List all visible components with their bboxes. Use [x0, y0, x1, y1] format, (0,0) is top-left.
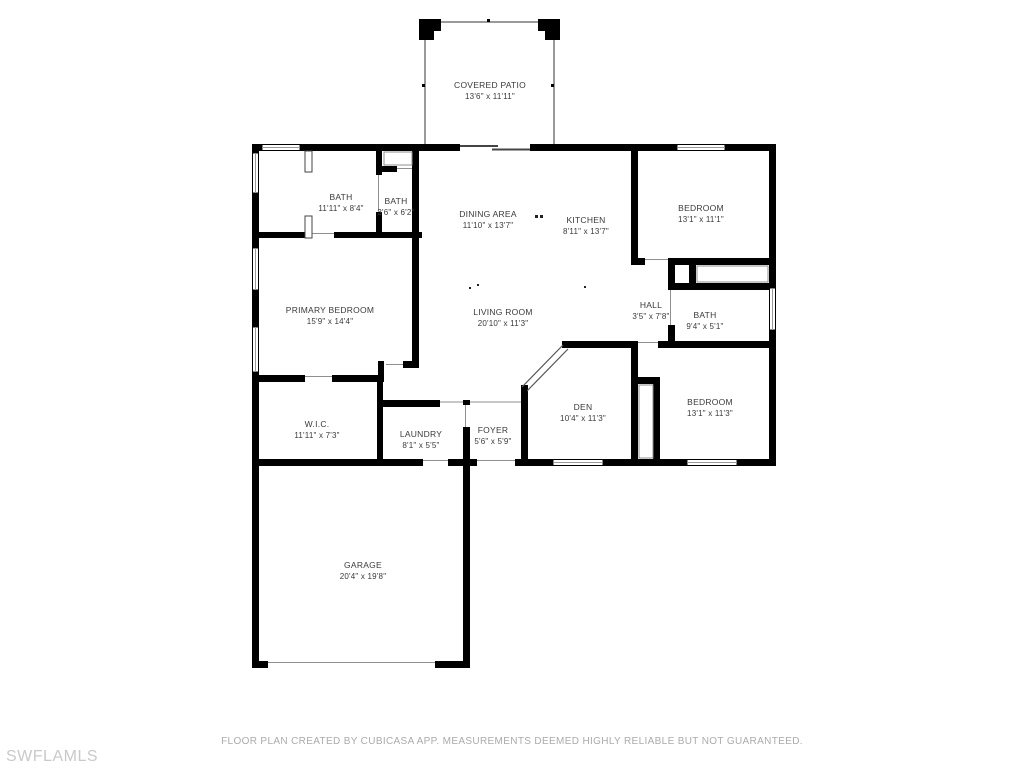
room-label-den: DEN 10'4" x 11'3" — [560, 402, 606, 424]
room-label-wic: W.I.C. 11'11" x 7'3" — [294, 419, 339, 441]
room-dimensions: 20'10" x 11'3" — [473, 318, 532, 329]
room-name: DEN — [560, 402, 606, 413]
room-label-bath-small: BATH 3'6" x 6'2" — [377, 196, 414, 218]
room-name: LIVING ROOM — [473, 307, 532, 318]
room-name: FOYER — [474, 425, 511, 436]
room-name: COVERED PATIO — [454, 80, 526, 91]
footer-disclaimer: FLOOR PLAN CREATED BY CUBICASA APP. MEAS… — [0, 736, 1024, 747]
closet-ne — [697, 266, 768, 282]
patio-post-right — [538, 19, 560, 31]
closet-se — [639, 385, 653, 458]
room-label-covered-patio: COVERED PATIO 13'6" x 11'11" — [454, 80, 526, 102]
room-label-hall: HALL 3'5" x 7'8" — [632, 300, 669, 322]
room-label-foyer: FOYER 5'6" x 5'9" — [474, 425, 511, 447]
room-dimensions: 3'5" x 7'8" — [632, 311, 669, 322]
room-name: GARAGE — [340, 560, 386, 571]
patio-tick-top — [487, 19, 490, 22]
room-name: KITCHEN — [563, 215, 609, 226]
room-name: LAUNDRY — [400, 429, 442, 440]
room-label-kitchen: KITCHEN 8'11" x 13'7" — [563, 215, 609, 237]
door-leaf-bath-1 — [305, 151, 312, 172]
room-dimensions: 11'11" x 7'3" — [294, 430, 339, 441]
room-name: DINING AREA — [459, 209, 517, 220]
floor-plan-page: COVERED PATIO 13'6" x 11'11" BATH 11'11"… — [0, 0, 1024, 768]
patio-tick-left — [422, 84, 425, 87]
patio-edge-left — [424, 40, 426, 144]
room-dimensions: 13'1" x 11'3" — [687, 408, 733, 419]
patio-tick-right — [551, 84, 554, 87]
room-dimensions: 10'4" x 11'3" — [560, 413, 606, 424]
shower-fixture — [384, 152, 412, 165]
room-dimensions: 13'6" x 11'11" — [454, 91, 526, 102]
room-name: BATH — [377, 196, 414, 207]
patio-post-left — [419, 19, 441, 31]
patio-edge-right — [553, 40, 555, 144]
room-label-bedroom-ne: BEDROOM 13'1" x 11'1" — [678, 203, 724, 225]
door-leaf-bath-2 — [305, 216, 312, 238]
room-dimensions: 15'9" x 14'4" — [286, 316, 374, 327]
room-dimensions: 8'11" x 13'7" — [563, 226, 609, 237]
watermark-swflamls: SWFLAMLS — [6, 748, 98, 766]
room-name: PRIMARY BEDROOM — [286, 305, 374, 316]
room-label-laundry: LAUNDRY 8'1" x 5'5" — [400, 429, 442, 451]
room-label-bedroom-se: BEDROOM 13'1" x 11'3" — [687, 397, 733, 419]
room-dimensions: 8'1" x 5'5" — [400, 440, 442, 451]
room-dimensions: 9'4" x 5'1" — [686, 321, 723, 332]
room-dimensions: 20'4" x 19'8" — [340, 571, 386, 582]
room-name: W.I.C. — [294, 419, 339, 430]
floor-plan-drawing — [0, 0, 1024, 768]
room-name: BATH — [318, 192, 363, 203]
patio-slider — [460, 146, 530, 150]
room-dimensions: 3'6" x 6'2" — [377, 207, 414, 218]
room-label-dining-area: DINING AREA 11'10" x 13'7" — [459, 209, 517, 231]
room-label-living-room: LIVING ROOM 20'10" x 11'3" — [473, 307, 532, 329]
room-name: BATH — [686, 310, 723, 321]
room-label-bath-main: BATH 11'11" x 8'4" — [318, 192, 363, 214]
den-angled-opening — [522, 345, 568, 391]
patio-post-left-foot — [419, 31, 434, 40]
room-label-primary-bedroom: PRIMARY BEDROOM 15'9" x 14'4" — [286, 305, 374, 327]
room-dimensions: 11'10" x 13'7" — [459, 220, 517, 231]
patio-post-right-foot — [545, 31, 560, 40]
room-name: HALL — [632, 300, 669, 311]
room-dimensions: 11'11" x 8'4" — [318, 203, 363, 214]
room-dimensions: 13'1" x 11'1" — [678, 214, 724, 225]
room-dimensions: 5'6" x 5'9" — [474, 436, 511, 447]
room-name: BEDROOM — [687, 397, 733, 408]
room-label-garage: GARAGE 20'4" x 19'8" — [340, 560, 386, 582]
room-name: BEDROOM — [678, 203, 724, 214]
room-label-bath-hall: BATH 9'4" x 5'1" — [686, 310, 723, 332]
